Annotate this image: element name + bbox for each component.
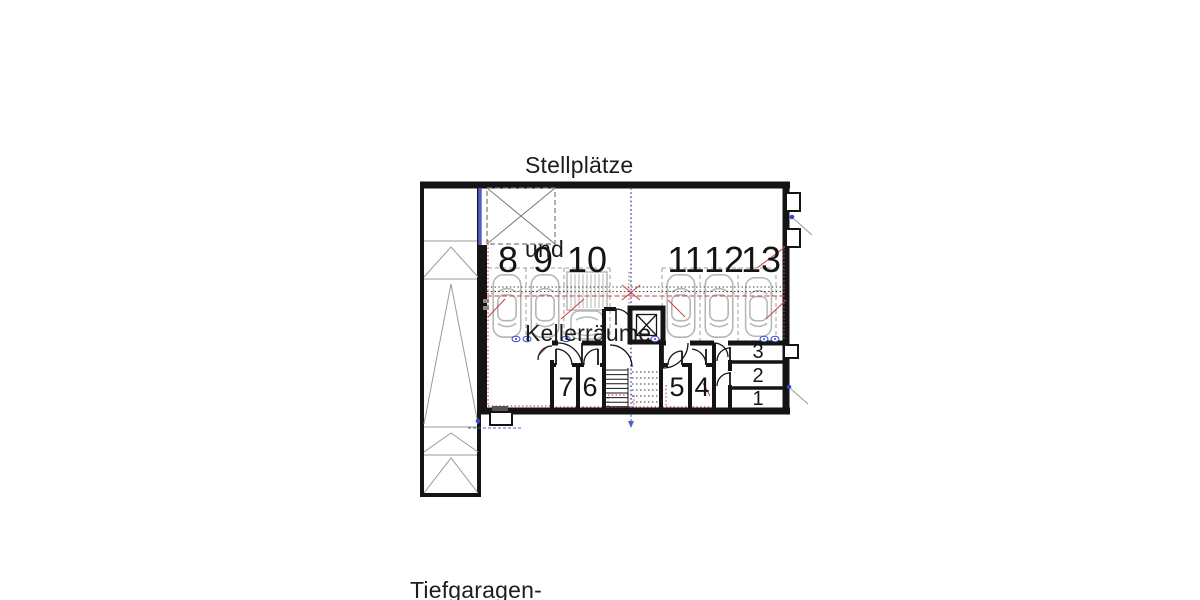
garage-area-label-line3: Kellerräume bbox=[525, 319, 651, 347]
cellar-room-5-label: 5 bbox=[669, 372, 684, 402]
storage-room-3-label: 3 bbox=[752, 341, 763, 363]
cellar-room-4-label: 4 bbox=[694, 372, 709, 402]
marker-dot-right-top bbox=[790, 215, 795, 220]
garage-area-label-line1: Stellplätze bbox=[525, 151, 651, 179]
parking-space-8-label: 8 bbox=[498, 239, 518, 280]
garage-area-label: Stellplätze und Kellerräume bbox=[525, 95, 651, 403]
ramp-label-line1: Tiefgaragen- bbox=[410, 576, 542, 600]
storage-room-1-label: 1 bbox=[752, 388, 763, 410]
garage-area-label-line2: und bbox=[525, 235, 651, 263]
parking-space-13-label: 13 bbox=[741, 239, 781, 280]
ramp-structure bbox=[422, 185, 479, 495]
marker-dot-right-bottom bbox=[787, 385, 792, 390]
floor-plan-page: Stellplätze und Kellerräume Tiefgaragen-… bbox=[0, 0, 1200, 600]
marker-dot-left-bottom bbox=[476, 419, 481, 424]
parking-space-12-label: 12 bbox=[704, 239, 744, 280]
ramp-label: Tiefgaragen- einfahrt bbox=[410, 520, 542, 600]
parking-space-11-label: 11 bbox=[667, 239, 704, 280]
car-space-8 bbox=[491, 275, 522, 337]
car-space-12 bbox=[703, 275, 734, 337]
ramp-walls bbox=[422, 185, 479, 495]
storage-room-2-label: 2 bbox=[752, 365, 763, 387]
car-space-11 bbox=[665, 275, 696, 337]
